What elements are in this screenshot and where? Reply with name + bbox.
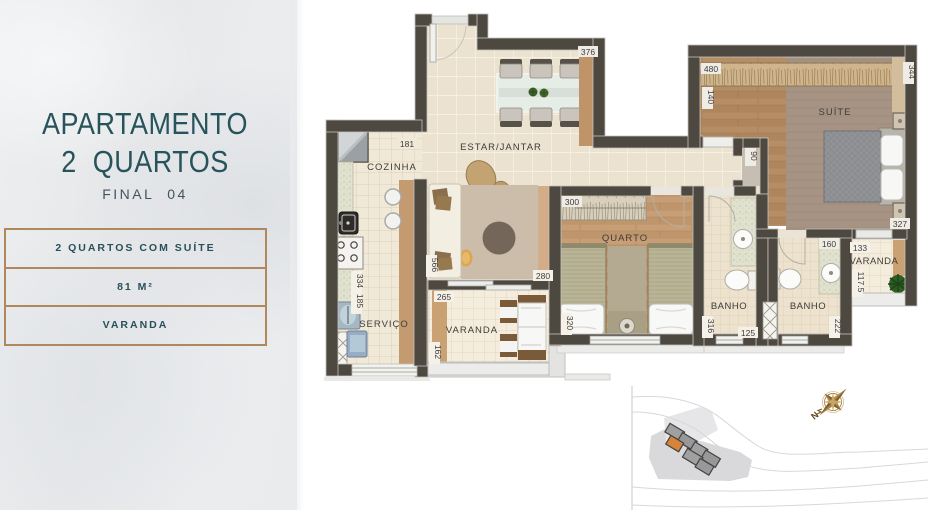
svg-text:160: 160: [822, 239, 836, 249]
svg-text:181: 181: [400, 139, 414, 149]
svg-text:VARANDA: VARANDA: [446, 325, 498, 336]
svg-text:480: 480: [704, 64, 718, 74]
svg-text:265: 265: [437, 292, 451, 302]
svg-text:344: 344: [907, 65, 917, 79]
svg-text:320: 320: [565, 316, 575, 330]
svg-text:QUARTO: QUARTO: [602, 233, 648, 244]
svg-text:140: 140: [706, 90, 716, 104]
svg-text:SERVIÇO: SERVIÇO: [359, 319, 409, 330]
svg-text:280: 280: [536, 271, 550, 281]
svg-text:185: 185: [355, 294, 365, 308]
svg-text:BANHO: BANHO: [711, 301, 747, 312]
svg-text:316: 316: [706, 319, 716, 333]
svg-text:90: 90: [749, 151, 759, 161]
svg-text:162: 162: [433, 345, 443, 359]
svg-text:300: 300: [565, 197, 579, 207]
svg-text:COZINHA: COZINHA: [367, 162, 417, 173]
svg-text:376: 376: [581, 47, 595, 57]
svg-text:SUÍTE: SUÍTE: [819, 107, 852, 118]
svg-text:117.5: 117.5: [856, 272, 866, 293]
svg-text:566: 566: [430, 258, 440, 272]
svg-text:ESTAR/JANTAR: ESTAR/JANTAR: [460, 142, 542, 153]
svg-text:133: 133: [853, 243, 867, 253]
svg-text:VARANDA: VARANDA: [850, 256, 899, 267]
svg-text:334: 334: [355, 274, 365, 288]
svg-text:125: 125: [741, 328, 755, 338]
svg-text:BANHO: BANHO: [790, 301, 826, 312]
svg-text:327: 327: [893, 219, 907, 229]
svg-text:222: 222: [833, 319, 843, 333]
